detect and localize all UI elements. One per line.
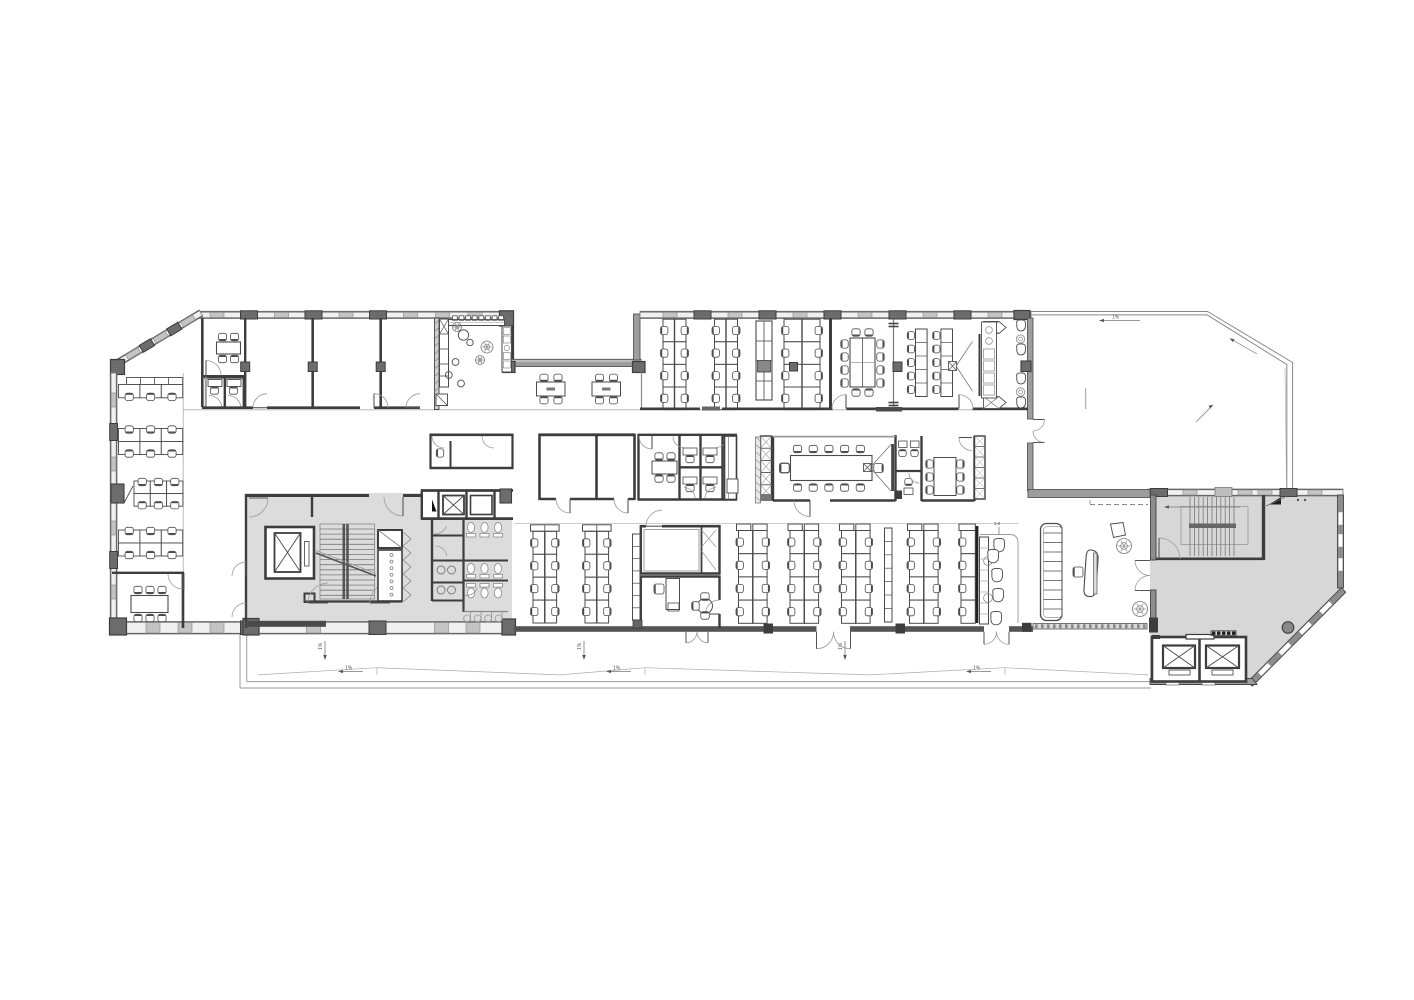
svg-text:1%: 1% [318, 642, 324, 650]
svg-text:1%: 1% [1112, 315, 1120, 321]
svg-text:1%: 1% [577, 642, 583, 650]
svg-text:1%: 1% [345, 666, 353, 672]
svg-text:1%: 1% [973, 666, 981, 672]
svg-text:3,8: 3,8 [994, 521, 1001, 526]
svg-text:1%: 1% [613, 666, 621, 672]
